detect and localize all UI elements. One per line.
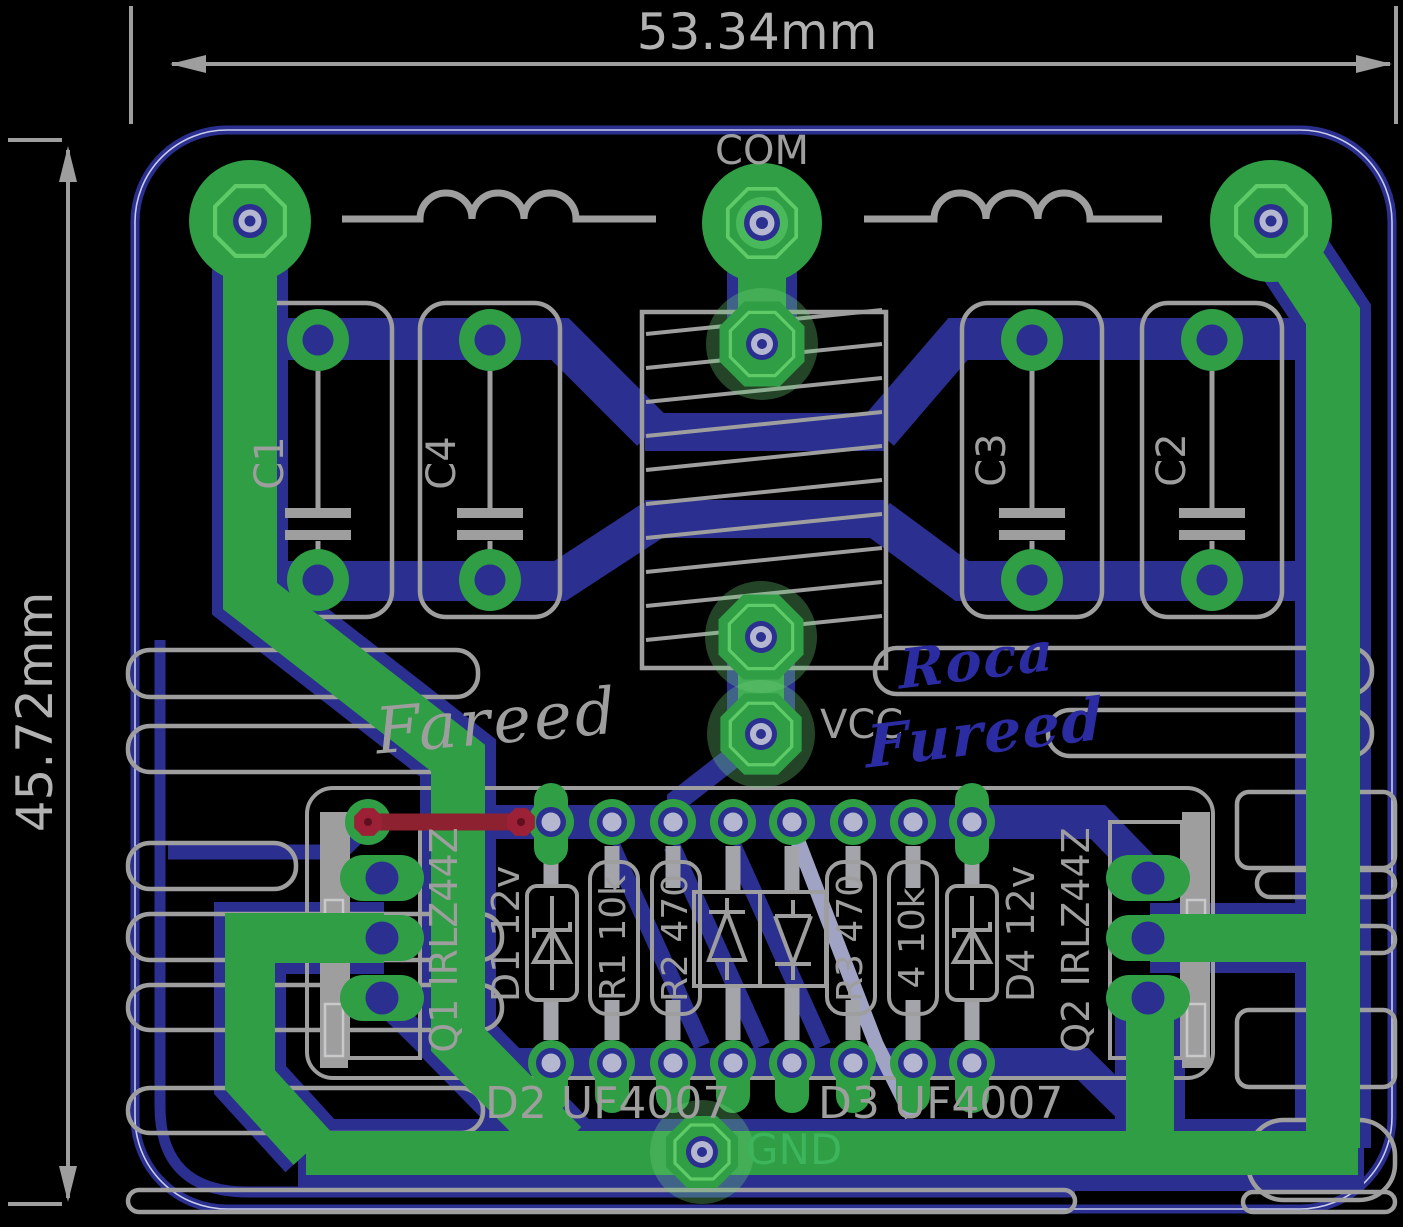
label-c1: C1	[250, 436, 290, 489]
dimension-width-label: 53.34mm	[637, 7, 878, 57]
pad-corner-top-right	[1210, 160, 1332, 282]
label-r1: R1 10k	[596, 875, 632, 1001]
pcb-artwork[interactable]	[0, 0, 1403, 1227]
inductor-right-symbol	[864, 193, 1162, 219]
label-r3: R3 470	[833, 874, 869, 1002]
dim-arrow-right	[1356, 55, 1392, 73]
net-label-gnd: GND	[746, 1129, 842, 1171]
pad-com	[702, 163, 822, 283]
label-c3: C3	[972, 433, 1012, 486]
pad-vcc	[707, 680, 815, 788]
label-c2: C2	[1152, 433, 1192, 486]
net-label-com: COM	[715, 131, 809, 171]
label-d4: D4 12v	[1002, 866, 1040, 1002]
label-r4: 4 10k	[895, 887, 931, 988]
dim-arrow-down	[59, 1166, 77, 1202]
label-q2: Q2 IRLZ44Z	[1057, 827, 1095, 1052]
label-r2: R2 470	[658, 874, 694, 1002]
pad-transformer-bottom	[705, 581, 817, 693]
dimension-height-label: 45.72mm	[10, 592, 60, 833]
label-c4: C4	[422, 436, 462, 489]
label-d1: D1 12v	[487, 866, 525, 1002]
q1-pads	[340, 855, 424, 1021]
pad-transformer-top	[706, 288, 818, 400]
pcb-editor-canvas[interactable]: 53.34mm 45.72mm COM VCC GND C1 C4 C3 C2 …	[0, 0, 1403, 1227]
d1-outline	[527, 886, 577, 1000]
label-d3-pkg: D3 UF4007	[818, 1082, 1063, 1126]
inductor-left-symbol	[342, 193, 656, 219]
q2-pads	[1106, 855, 1190, 1021]
dim-arrow-left	[170, 55, 206, 73]
label-d2-pkg: D2 UF4007	[485, 1082, 730, 1126]
label-q1: Q1 IRLZ44Z	[425, 827, 463, 1052]
dim-arrow-up	[59, 146, 77, 182]
pad-corner-top-left	[189, 160, 311, 282]
d4-outline	[947, 886, 997, 1000]
